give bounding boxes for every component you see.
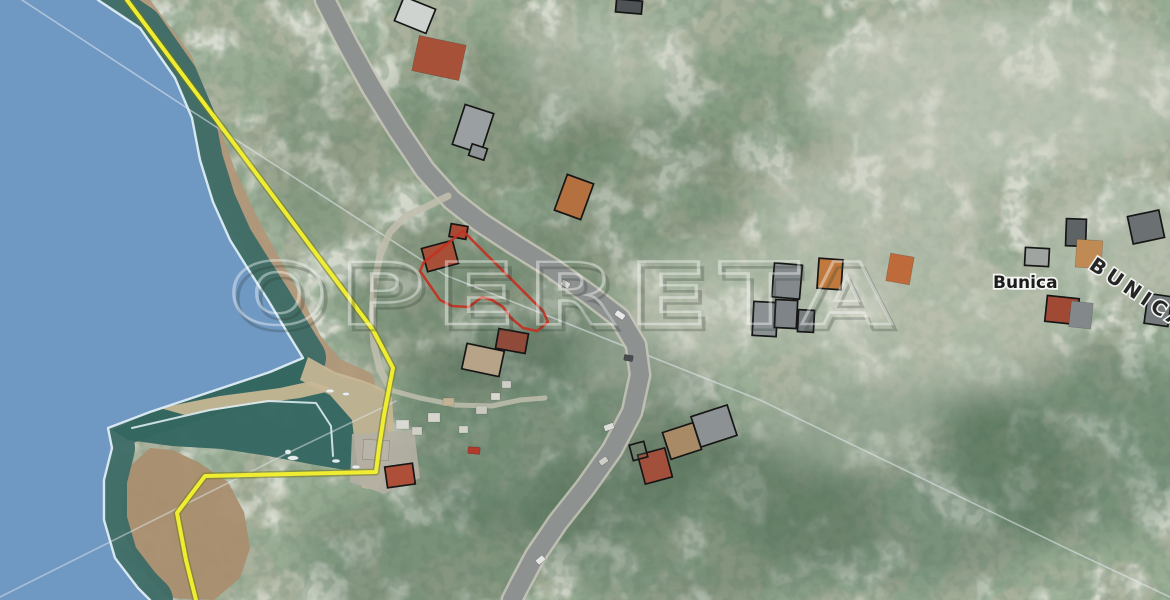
building (1025, 247, 1050, 266)
hut (491, 393, 500, 400)
hut (476, 406, 487, 414)
building (615, 0, 642, 14)
boat (343, 392, 350, 395)
boat (285, 450, 291, 455)
building (1127, 210, 1164, 244)
aerial-map-view: OPERETA OPERETA Bunica BUNICA (0, 0, 1170, 600)
hut (502, 381, 511, 388)
building (1069, 301, 1094, 329)
hut (396, 420, 409, 429)
hut (443, 398, 454, 406)
building (385, 463, 416, 488)
building (629, 441, 648, 460)
boat (352, 465, 360, 469)
hut (412, 427, 422, 435)
vehicle (624, 354, 634, 361)
settlement-label: Bunica (993, 273, 1058, 293)
photo-watermark: OPERETA OPERETA (228, 245, 907, 351)
map-canvas: OPERETA OPERETA Bunica BUNICA (0, 0, 1170, 600)
boat (326, 389, 334, 393)
vehicle (468, 446, 481, 454)
hut (428, 413, 440, 422)
karst-patch (510, 10, 690, 110)
karst-patch (750, 370, 930, 470)
boat (332, 459, 340, 463)
boat (288, 456, 299, 460)
watermark-text: OPERETA (228, 245, 903, 345)
hut (459, 426, 468, 433)
